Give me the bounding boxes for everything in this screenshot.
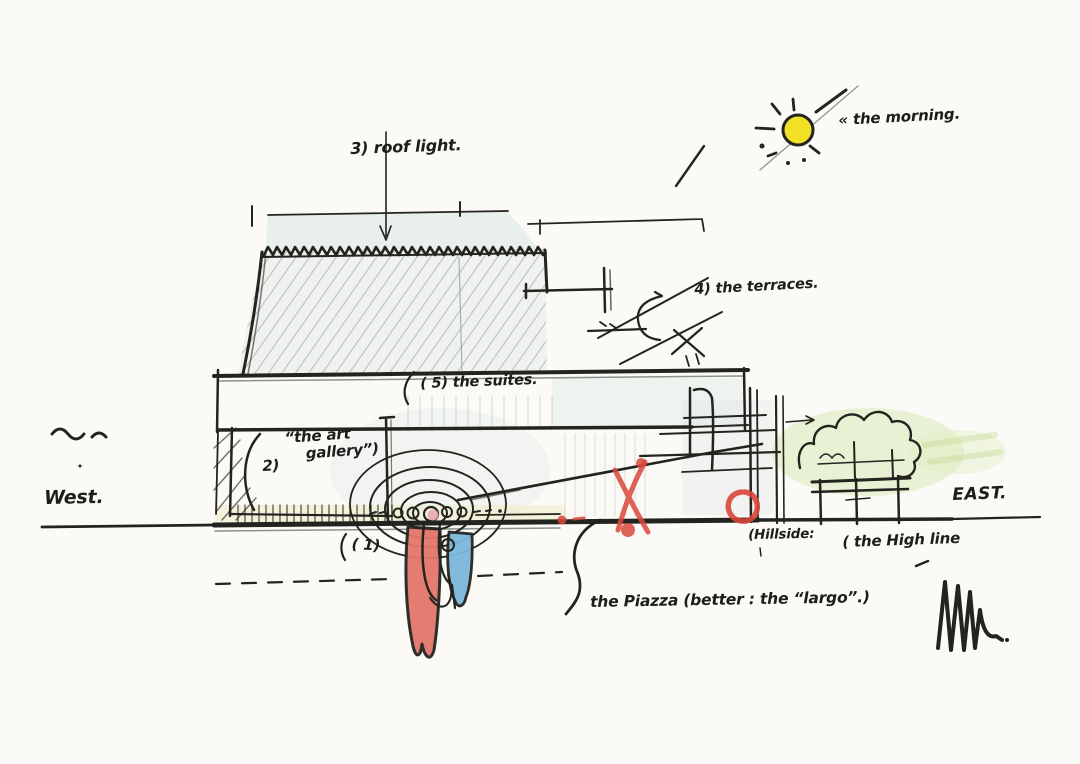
water-ripple-marks [52,429,106,439]
underground-elements [406,524,472,657]
west-label: West. [44,487,104,509]
gallery-brace [245,434,260,510]
entrance-number-label: ( 1) [351,536,380,554]
ground-line [42,517,1040,584]
hillside-label: (Hillside: [748,527,814,543]
art-gallery-label: “the art gallery”) [284,423,379,463]
roof-light-label: 3) roof light. [350,136,462,158]
basement-dashed-line [216,572,562,584]
art-gallery-number: 2) [262,457,280,475]
red-dot [558,516,567,525]
sketch-page: « the morning. 3) roof light. 4) the ter… [0,0,1080,764]
suites-paren [405,372,414,404]
entrance-paren [341,534,346,560]
east-label: EAST. [952,484,1007,505]
signature-scribble [938,582,1002,650]
